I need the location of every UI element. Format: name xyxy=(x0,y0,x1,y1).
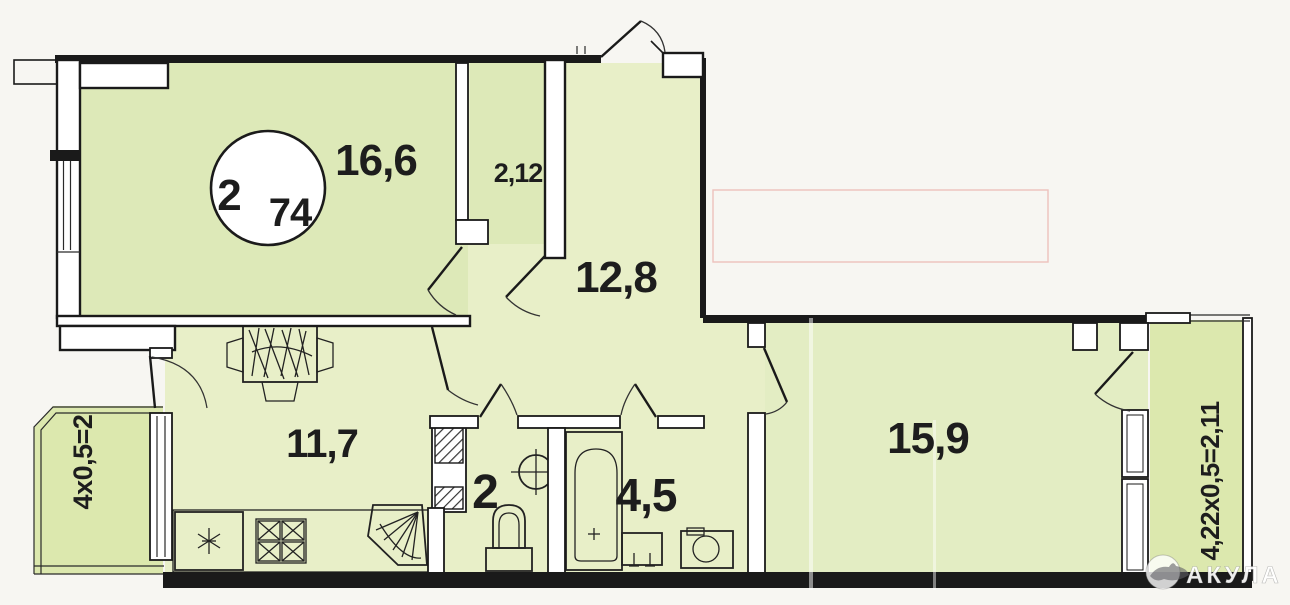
badge-total-area: 74 xyxy=(269,191,313,235)
corridor-wall-b xyxy=(518,416,620,428)
left-balcony-floor xyxy=(34,406,163,574)
floor-plan-canvas: 16,6 2,12 12,8 11,7 2 4,5 15,9 4х0,5=2 4… xyxy=(0,0,1290,605)
balcony-door-pier xyxy=(1073,323,1097,350)
bedroom-window-upper xyxy=(1122,410,1148,477)
corner-step xyxy=(80,63,168,88)
wardrobe-floor xyxy=(470,63,545,244)
bottom-wall xyxy=(163,572,1252,588)
vent-duct-icon xyxy=(432,420,466,512)
wardrobe-left-wall xyxy=(456,63,468,220)
scan-red-mark xyxy=(713,190,1048,262)
right-balcony-parapet-right xyxy=(1243,318,1252,580)
window-pier xyxy=(50,150,80,161)
top-wall xyxy=(55,55,600,63)
kitchen-area-label: 11,7 xyxy=(286,422,358,466)
living-room-area-label: 16,6 xyxy=(335,136,417,185)
left-balcony xyxy=(34,406,164,574)
left-exterior-wall xyxy=(57,60,80,318)
scan-streak-1 xyxy=(809,318,813,590)
apartment-badge: 2 74 xyxy=(211,131,325,245)
wardrobe-door-block xyxy=(456,220,488,244)
entrance-jamb-left xyxy=(596,55,601,63)
balcony-top-block xyxy=(1146,313,1190,323)
hallway-area-label: 12,8 xyxy=(575,253,657,302)
bedroom-wall-stub xyxy=(748,323,765,347)
kitchen-window-wall xyxy=(150,413,172,560)
left-balcony-dim-label: 4х0,5=2 xyxy=(68,415,98,510)
balcony-door-stub xyxy=(150,348,172,358)
right-balcony-dim-label: 4,22х0,5=2,11 xyxy=(1195,401,1225,560)
wardrobe-right-wall xyxy=(545,60,565,258)
facade-ledge xyxy=(14,60,57,84)
wardrobe-area-label: 2,12 xyxy=(494,158,543,188)
wing-top-wall xyxy=(703,315,1148,323)
bathroom-area-label: 4,5 xyxy=(616,469,677,521)
balcony-divider-stub xyxy=(1120,323,1148,350)
wc-area-label: 2 xyxy=(472,466,498,519)
badge-room-count: 2 xyxy=(217,171,240,220)
bedroom-window-lower xyxy=(1122,479,1148,575)
watermark-text: АКУЛА xyxy=(1186,562,1282,589)
corridor-wall-c xyxy=(658,416,704,428)
wc-bath-wall xyxy=(548,428,565,575)
entrance-door-block xyxy=(663,53,703,77)
floor-plan-page: 16,6 2,12 12,8 11,7 2 4,5 15,9 4х0,5=2 4… xyxy=(0,0,1290,605)
bedroom-area-label: 15,9 xyxy=(887,414,969,463)
wc-left-wall xyxy=(428,508,444,575)
bath-bedroom-wall xyxy=(748,413,765,575)
living-kitchen-wall xyxy=(57,316,470,326)
kitchen-wall-step xyxy=(60,326,175,350)
hall-right-wall xyxy=(700,58,706,318)
corridor-wall-a xyxy=(430,416,478,428)
